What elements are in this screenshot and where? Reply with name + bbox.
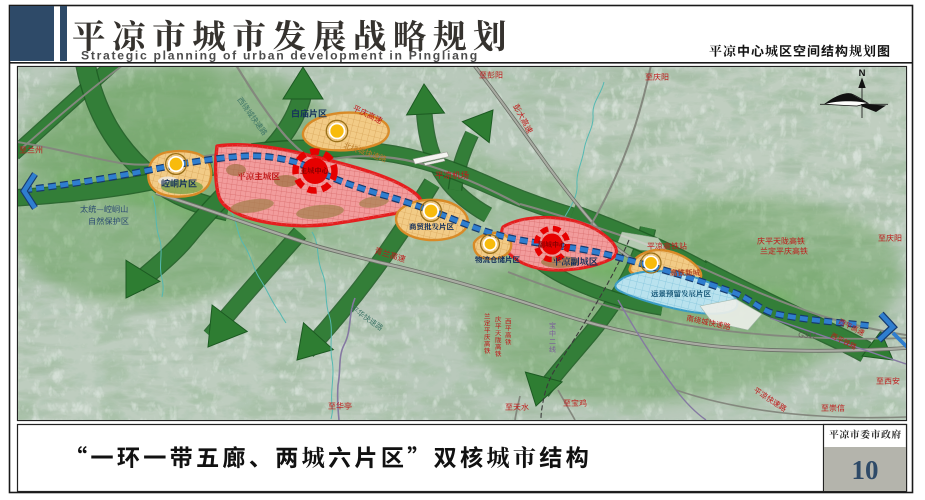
svg-text:N: N [859,68,866,79]
svg-text:Strategic planning of urban de: Strategic planning of urban development … [81,49,479,63]
svg-text:G312: G312 [798,330,817,341]
svg-text:10: 10 [852,455,879,485]
